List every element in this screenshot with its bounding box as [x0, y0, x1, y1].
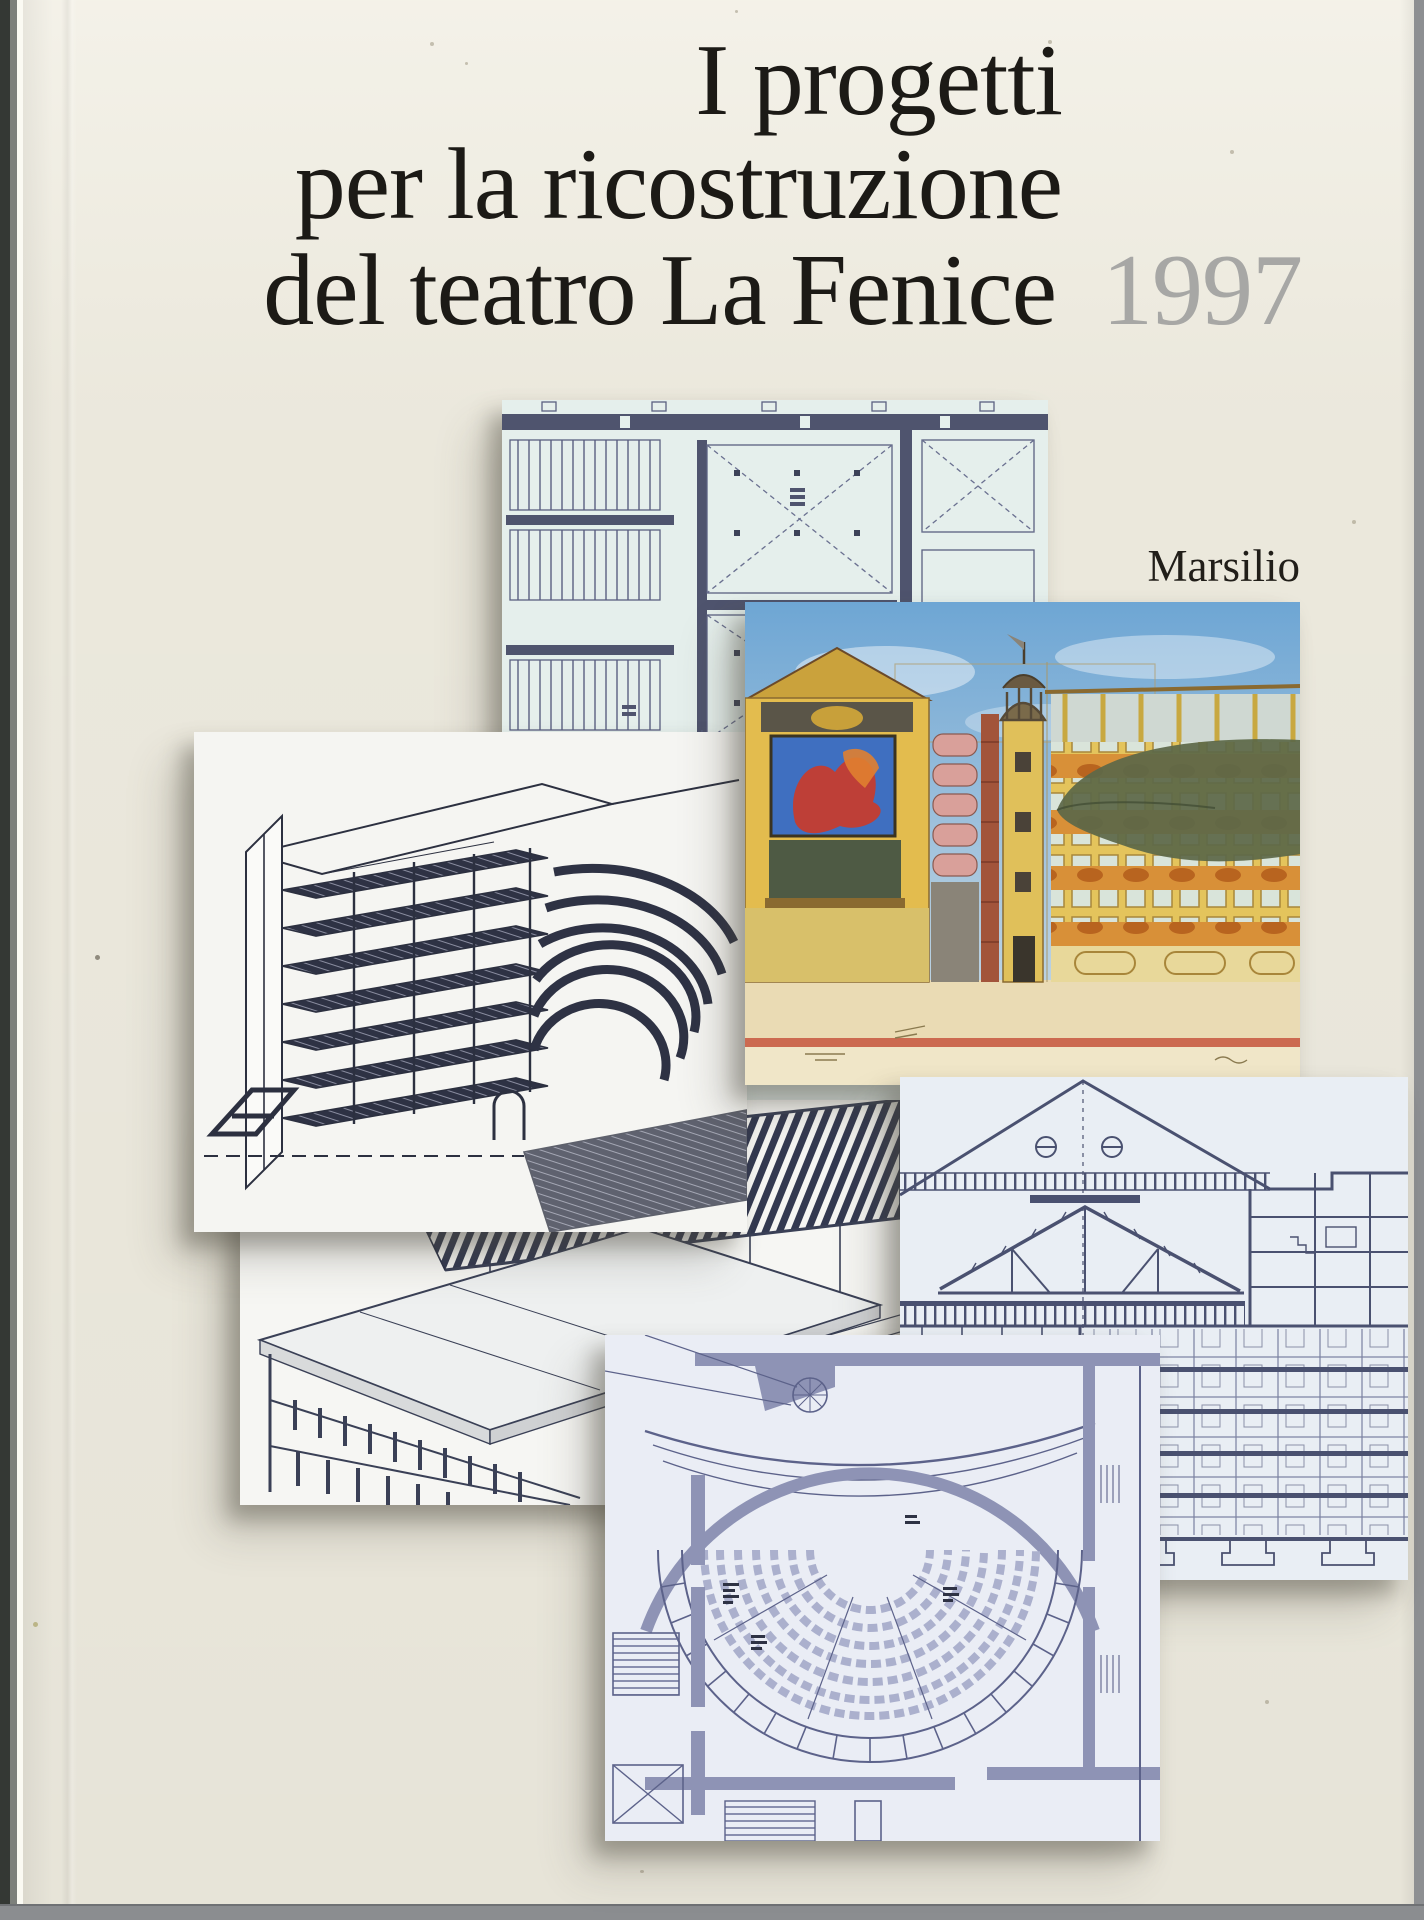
spine-crease: [61, 0, 77, 1904]
year-label: 1997: [1102, 234, 1302, 347]
cover-title-line3-text: del teatro La Fenice: [263, 234, 1056, 347]
dust-speck: [980, 210, 983, 213]
dust-speck: [430, 42, 434, 46]
dust-speck: [640, 1870, 644, 1873]
dust-speck: [1048, 40, 1052, 44]
photo-left-edge: [0, 0, 10, 1920]
dust-speck: [33, 1622, 38, 1627]
photo-bottom-edge: [0, 1904, 1424, 1920]
publisher-label: Marsilio: [1148, 540, 1301, 592]
structural-axonometric-drawing: [194, 732, 747, 1232]
dust-speck: [1265, 1700, 1269, 1704]
book-cover-photo: I progetti per la ricostruzione del teat…: [0, 0, 1424, 1920]
watercolor-section-drawing: [745, 602, 1300, 1085]
book-spine-edge: [10, 0, 17, 1920]
cover-title-line1: I progetti: [695, 30, 1062, 132]
dust-speck: [1230, 150, 1234, 154]
dust-speck: [735, 10, 738, 13]
dust-speck: [95, 955, 100, 960]
dust-speck: [1352, 520, 1356, 524]
structural-axonometric-svg: [194, 732, 747, 1232]
auditorium-plan-drawing: [605, 1335, 1160, 1841]
cover-title-line2: per la ricostruzione: [295, 134, 1062, 236]
cover-title-line3: del teatro La Fenice1997: [263, 240, 1302, 342]
watercolor-section-svg: [745, 602, 1300, 1085]
dust-speck: [465, 62, 468, 65]
auditorium-plan-svg: [605, 1335, 1160, 1841]
